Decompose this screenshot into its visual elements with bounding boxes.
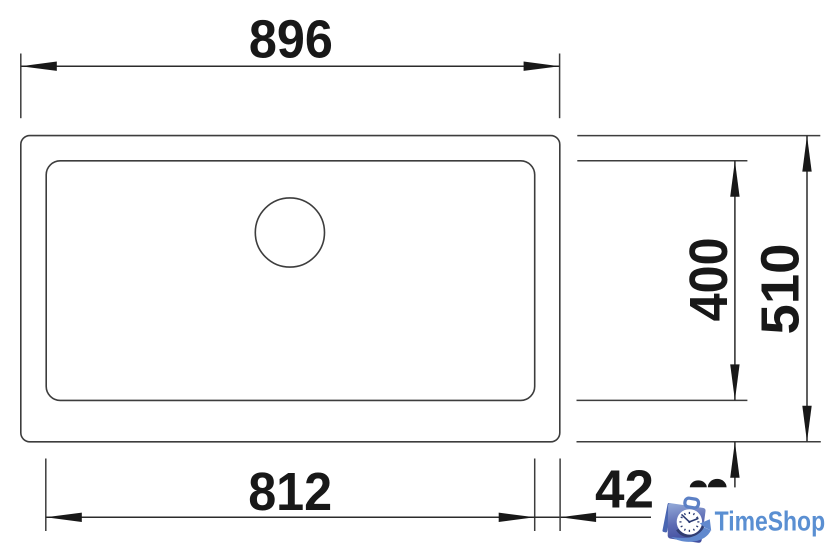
svg-text:400: 400 [679, 237, 739, 321]
svg-text:510: 510 [751, 244, 811, 335]
svg-text:42: 42 [595, 460, 654, 520]
svg-text:TimeShop: TimeShop [715, 505, 826, 536]
svg-text:812: 812 [248, 462, 332, 522]
svg-text:896: 896 [249, 9, 333, 69]
